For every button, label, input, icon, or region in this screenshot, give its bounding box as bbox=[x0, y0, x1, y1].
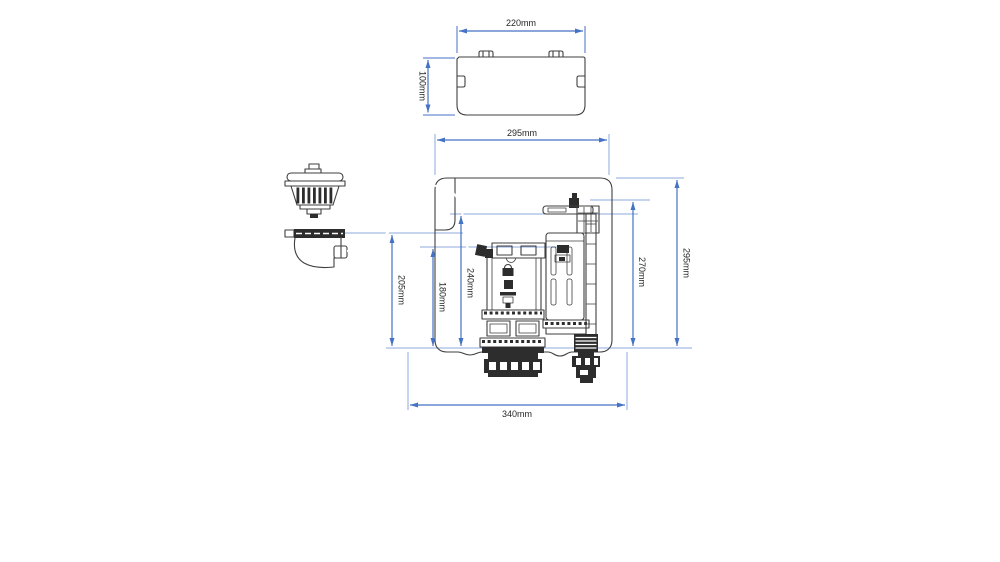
dim-label-fill-valve-height: 270mm bbox=[637, 257, 647, 287]
dim-label-tank-bottom-width: 340mm bbox=[502, 409, 532, 419]
inlet-shank bbox=[572, 334, 600, 383]
technical-drawing-canvas: 220mm 100mm 295mm 295mm 270mm 240mm bbox=[0, 0, 1000, 562]
dim-label-button-housing-height: 205mm bbox=[397, 275, 407, 305]
drawing-page: 220mm 100mm 295mm 295mm 270mm 240mm bbox=[0, 0, 1000, 562]
dim-label-lid-width: 220mm bbox=[506, 18, 536, 28]
dim-label-lid-height: 100mm bbox=[418, 71, 428, 101]
outlet-flange bbox=[484, 353, 542, 377]
padlock-icon-body bbox=[503, 268, 514, 276]
dim-label-cable-entry-height: 240mm bbox=[466, 268, 476, 298]
dim-label-flush-valve-height: 180mm bbox=[438, 282, 448, 312]
dim-label-tank-top-width: 295mm bbox=[507, 128, 537, 138]
dim-label-overall-height: 295mm bbox=[682, 248, 692, 278]
page-background bbox=[0, 0, 1000, 562]
